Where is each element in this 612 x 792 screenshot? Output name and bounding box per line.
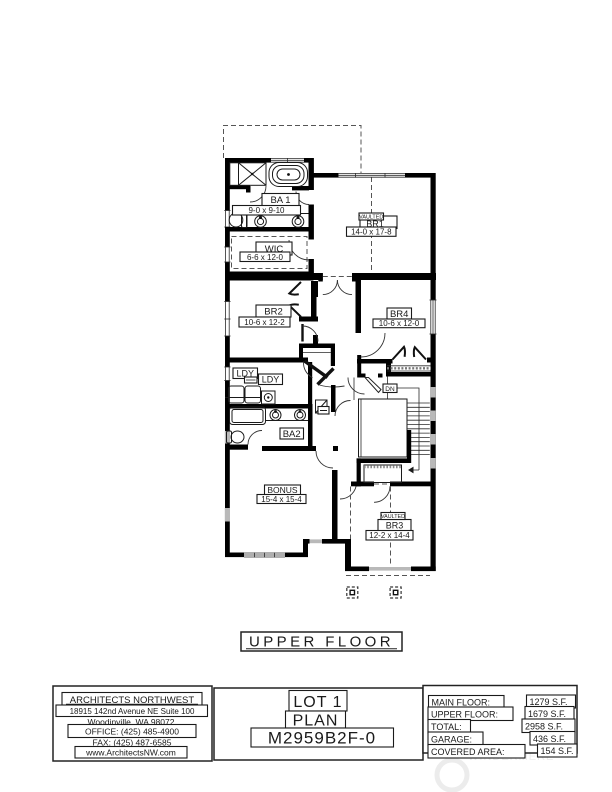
svg-text:BONUS: BONUS (267, 485, 298, 495)
svg-text:OFFICE: (425) 485-4900: OFFICE: (425) 485-4900 (85, 727, 179, 737)
svg-text:TOTAL:: TOTAL: (431, 722, 462, 732)
svg-text:GARAGE:: GARAGE: (431, 734, 472, 744)
svg-text:M2959B2F-0: M2959B2F-0 (268, 729, 376, 748)
svg-text:9-0 x 9-10: 9-0 x 9-10 (248, 206, 285, 215)
svg-text:436 S.F.: 436 S.F. (533, 734, 566, 744)
svg-text:www.ArchitectsNW.com: www.ArchitectsNW.com (85, 748, 176, 758)
svg-text:BR2: BR2 (264, 307, 282, 318)
svg-text:VAULTED: VAULTED (381, 514, 405, 520)
svg-text:14-0 x 17-8: 14-0 x 17-8 (351, 228, 392, 237)
svg-text:FAX: (425) 487-6585: FAX: (425) 487-6585 (93, 737, 172, 747)
svg-text:15-4 x 15-4: 15-4 x 15-4 (261, 495, 302, 504)
svg-text:BA 1: BA 1 (270, 195, 290, 206)
svg-text:UPPER FLOOR:: UPPER FLOOR: (431, 709, 498, 719)
svg-text:2958 S.F.: 2958 S.F. (525, 721, 563, 731)
svg-text:1279 S.F.: 1279 S.F. (530, 697, 568, 707)
svg-text:BA2: BA2 (283, 429, 301, 440)
svg-text:COVERED AREA:: COVERED AREA: (431, 747, 505, 757)
svg-text:6-6 x 12-0: 6-6 x 12-0 (247, 253, 284, 262)
svg-text:PLAN: PLAN (293, 713, 339, 730)
svg-text:10-6 x 12-0: 10-6 x 12-0 (379, 319, 420, 328)
svg-text:MAIN FLOOR:: MAIN FLOOR: (432, 698, 491, 708)
svg-text:DN: DN (385, 386, 395, 393)
svg-text:UPPER FLOOR: UPPER FLOOR (249, 634, 394, 651)
svg-text:BR3: BR3 (386, 521, 404, 531)
svg-text:12-2 x 14-4: 12-2 x 14-4 (369, 531, 410, 540)
svg-text:LDY: LDY (262, 375, 280, 385)
svg-text:LOT 1: LOT 1 (293, 694, 342, 711)
svg-text:10-6 x 12-2: 10-6 x 12-2 (244, 318, 285, 327)
svg-text:1679 S.F.: 1679 S.F. (528, 709, 566, 719)
svg-text:18915 142nd Avenue NE Suite 10: 18915 142nd Avenue NE Suite 100 (70, 707, 195, 716)
svg-text:154 S.F.: 154 S.F. (541, 746, 574, 756)
